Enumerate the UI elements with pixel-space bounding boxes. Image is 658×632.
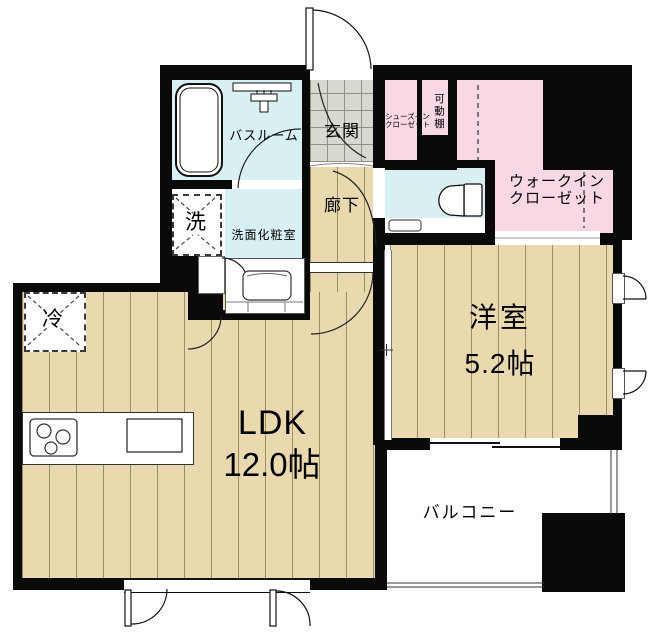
washroom-door-gap bbox=[198, 256, 225, 294]
balcony-label: バルコニー bbox=[405, 503, 535, 522]
ldk-label: LDK bbox=[210, 404, 335, 442]
ldk-size: 12.0帖 bbox=[203, 447, 341, 484]
wall-segment bbox=[560, 438, 578, 450]
western-room-size: 5.2帖 bbox=[430, 348, 570, 379]
balcony-window-gap bbox=[430, 438, 560, 451]
room-entrance bbox=[310, 80, 373, 162]
ldk-hall-strip bbox=[310, 271, 373, 292]
hallway-label: 廊下 bbox=[311, 196, 373, 215]
wall-segment bbox=[613, 65, 632, 240]
balcony-block bbox=[542, 513, 625, 592]
shoes-closet-label: シューズイン クローゼット bbox=[385, 113, 417, 130]
kitchen-counter bbox=[22, 412, 194, 465]
closet-opening bbox=[495, 231, 600, 245]
floor-plan: バスルーム 洗面化粧室 洗 冷 玄関 廊下 シューズイン クローゼット 可動棚 … bbox=[0, 0, 658, 632]
movable-shelf-label: 可動棚 bbox=[427, 86, 444, 138]
wall-segment bbox=[172, 256, 198, 292]
refrigerator-label: 冷 bbox=[29, 308, 77, 332]
western-room-label: 洋室 bbox=[430, 302, 570, 333]
washer-label: 洗 bbox=[175, 211, 217, 235]
wall-segment bbox=[448, 80, 457, 167]
room-washroom bbox=[225, 189, 303, 258]
wall-segment bbox=[578, 415, 622, 450]
bath-door-gap bbox=[232, 180, 302, 189]
toilet-door-gap bbox=[373, 168, 385, 218]
wall-segment bbox=[385, 160, 495, 168]
wall-segment bbox=[13, 578, 124, 590]
wall-segment bbox=[375, 445, 387, 585]
wall-segment bbox=[13, 283, 22, 590]
room-western bbox=[390, 245, 613, 440]
hall-ldk-door-gap bbox=[310, 262, 373, 273]
ldk-south-opening bbox=[124, 578, 310, 593]
entrance-label: 玄関 bbox=[312, 122, 372, 141]
south-door-icons bbox=[125, 589, 310, 626]
wall-segment bbox=[172, 65, 305, 80]
room-toilet bbox=[383, 168, 485, 218]
wall-segment bbox=[188, 292, 223, 320]
washroom-label: 洗面化粧室 bbox=[223, 229, 305, 242]
wall-segment bbox=[485, 168, 495, 233]
toilet-floor-strip bbox=[383, 218, 485, 233]
vanity-counter bbox=[225, 258, 305, 314]
walkin-closet-label: ウォークイン クローゼット bbox=[497, 174, 617, 208]
ldk-western-partition bbox=[384, 250, 392, 440]
wall-segment bbox=[160, 65, 172, 292]
bathroom-label: バスルーム bbox=[223, 129, 305, 144]
wall-segment bbox=[310, 578, 387, 590]
wall-segment bbox=[13, 283, 198, 292]
service-door-gap-2 bbox=[612, 368, 625, 399]
service-door-gap-1 bbox=[612, 273, 625, 304]
service-door-icons bbox=[623, 276, 646, 394]
